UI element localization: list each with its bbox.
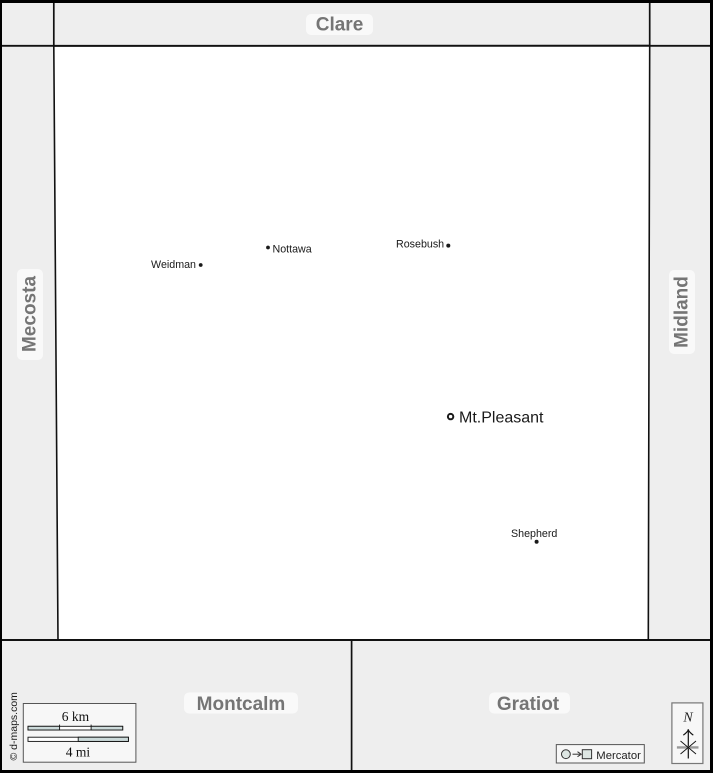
- svg-text:Mecosta: Mecosta: [20, 276, 41, 352]
- svg-text:Rosebush: Rosebush: [396, 239, 444, 251]
- svg-text:Shepherd: Shepherd: [511, 528, 557, 540]
- svg-text:Mt.Pleasant: Mt.Pleasant: [459, 410, 544, 427]
- svg-text:Nottawa: Nottawa: [273, 244, 312, 256]
- svg-text:© d-maps.com: © d-maps.com: [8, 692, 20, 761]
- svg-text:Midland: Midland: [672, 276, 693, 348]
- svg-text:Mercator: Mercator: [596, 750, 641, 762]
- svg-text:Weidman: Weidman: [151, 259, 196, 271]
- svg-text:6 km: 6 km: [62, 709, 90, 724]
- svg-text:Gratiot: Gratiot: [497, 694, 560, 715]
- svg-text:4 mi: 4 mi: [66, 745, 91, 760]
- svg-text:Montcalm: Montcalm: [197, 694, 286, 715]
- svg-text:N: N: [682, 711, 693, 726]
- svg-text:Clare: Clare: [316, 15, 364, 36]
